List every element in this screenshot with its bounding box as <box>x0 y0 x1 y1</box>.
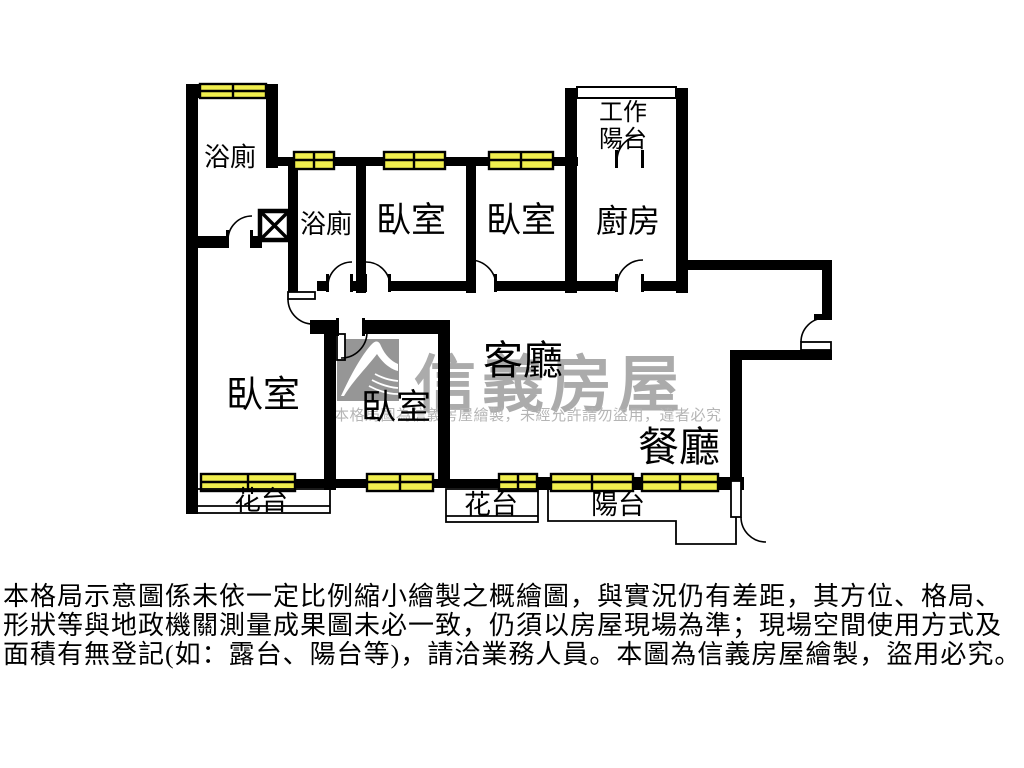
door-leaf <box>731 481 741 517</box>
room-label-dining: 餐廳 <box>638 426 720 469</box>
door-icon <box>741 517 766 542</box>
disclaimer-line: 形狀等與地政機關測量成果圖未必一致，仍須以房屋現場為準；現場空間使用方式及 <box>3 611 1023 640</box>
window-icon <box>200 84 266 98</box>
room-label-work-balcony: 工作陽台 <box>599 100 651 154</box>
room-label-bedroom-mid: 臥室 <box>361 390 431 427</box>
door-icon <box>801 318 825 342</box>
window-icon <box>642 474 718 491</box>
work-balcony-railing <box>577 87 676 98</box>
label-flower-bed-mid: 花台 <box>464 491 518 519</box>
door-leaf <box>337 334 345 360</box>
door-icon <box>228 216 252 240</box>
room-label-bath-top: 浴廁 <box>204 144 256 171</box>
room-label-bedroom-2: 臥室 <box>486 203 556 240</box>
room-label-living: 客廳 <box>483 340 563 382</box>
window-icon <box>489 152 553 169</box>
door-leaf <box>801 342 831 350</box>
shaft-icon <box>260 211 289 240</box>
room-label-bedroom-left: 臥室 <box>226 377 300 416</box>
door-icon <box>366 262 390 286</box>
room-label-bedroom-1: 臥室 <box>376 203 446 240</box>
window-icon <box>384 152 445 169</box>
disclaimer-line: 本格局示意圖係未依一定比例縮小繪製之概繪圖，與實況仍有差距，其方位、格局、 <box>3 582 1023 611</box>
label-balcony: 陽台 <box>591 491 645 519</box>
room-label-bath-small: 浴廁 <box>300 211 352 238</box>
door-icon <box>328 262 352 286</box>
label-flower-bed-left: 花台 <box>234 487 288 515</box>
door-icon <box>288 299 313 324</box>
window-icon <box>367 474 433 491</box>
door-leaf <box>288 292 315 299</box>
door-icon <box>617 260 643 286</box>
disclaimer-line: 面積有無登記(如：露台、陽台等)，請洽業務人員。本圖為信義房屋繪製，盜用必究。 <box>3 640 1023 669</box>
disclaimer-text: 本格局示意圖係未依一定比例縮小繪製之概繪圖，與實況仍有差距，其方位、格局、 形狀… <box>3 582 1023 669</box>
window-icon <box>551 474 633 491</box>
window-icon <box>294 152 334 169</box>
floor-plan-page: 信義房屋 本格局圖為信義房屋繪製，未經允許請勿盜用，違者必究 <box>0 0 1024 768</box>
walls <box>186 84 832 514</box>
room-label-kitchen: 廚房 <box>596 205 660 239</box>
